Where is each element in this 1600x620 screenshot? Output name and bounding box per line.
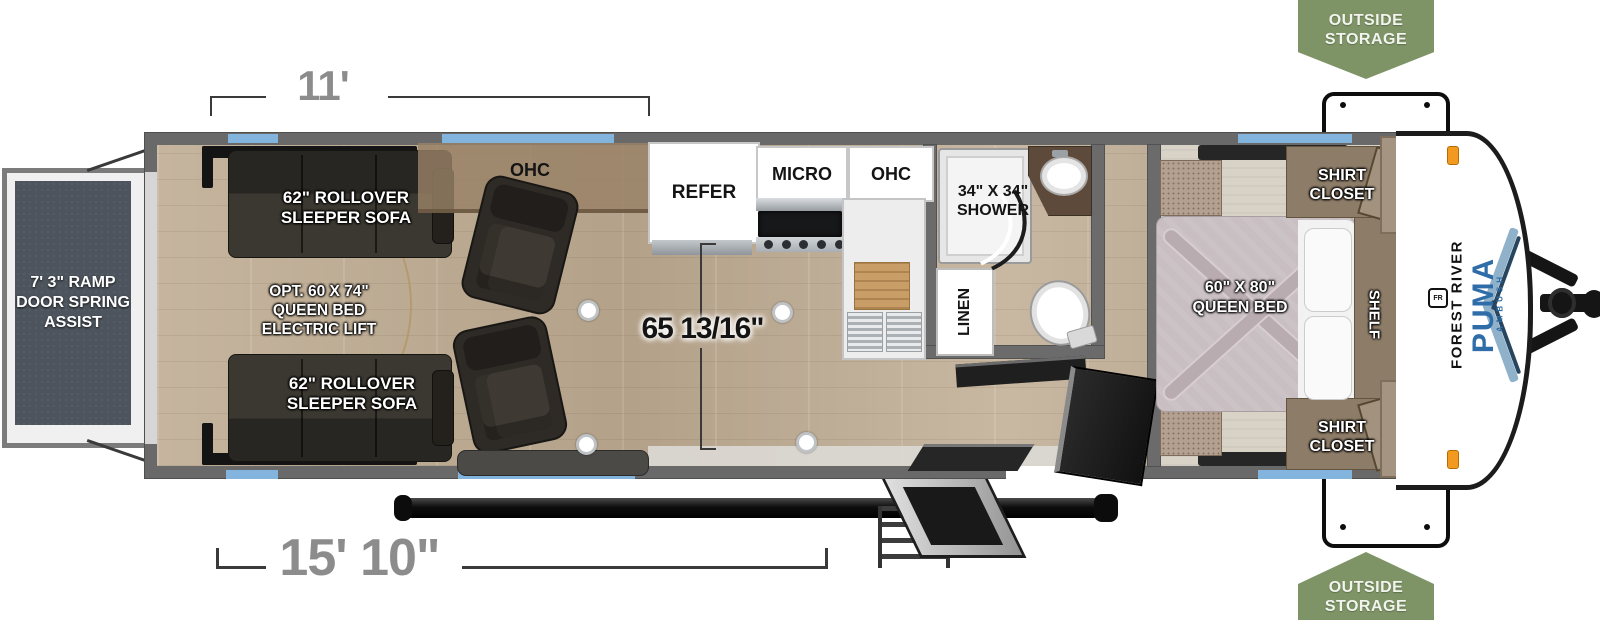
shirt-closet-top-label: SHIRT CLOSET [1282, 166, 1402, 204]
ramp-door-surface: 7' 3" RAMP DOOR SPRING ASSIST [15, 181, 131, 425]
floor-light [796, 432, 817, 453]
floor-light [578, 300, 599, 321]
dimension-interior-width: 65 13/16" [620, 312, 785, 346]
marker-light [1447, 146, 1459, 165]
window [228, 134, 278, 143]
floorplan-canvas: 11' 15' 10" OUTSIDE STORAGE OUTSIDE STOR… [0, 0, 1600, 620]
dimension-tick [216, 548, 219, 569]
window [226, 470, 278, 479]
cutting-board [854, 262, 910, 310]
sink-faucet [1052, 150, 1068, 157]
dimension-garage-width: 11' [268, 62, 378, 110]
queen-bed-label: 60" X 80" QUEEN BED [1152, 278, 1328, 318]
shirt-closet-bottom-label: SHIRT CLOSET [1282, 418, 1402, 456]
sink-cover [886, 312, 922, 352]
cooktop-burners [756, 237, 852, 252]
hitch-coupler [1548, 288, 1576, 318]
brand-trim: AMBUSH [1496, 253, 1505, 353]
window [442, 134, 614, 143]
entry-floor-strip [648, 446, 1108, 466]
microwave-label: MICRO [758, 148, 846, 200]
range-hood [756, 198, 844, 211]
refrigerator-label: REFER [650, 144, 758, 242]
entry-door-open [1054, 366, 1159, 487]
dimension-line [216, 566, 266, 569]
hitch-jack-knob [1582, 290, 1600, 318]
window [1258, 470, 1352, 479]
bed-lift-post [202, 146, 213, 188]
bathroom-wall-right [1092, 145, 1104, 358]
dimension-line [462, 566, 828, 569]
forest-river-emblem: FR [1428, 288, 1448, 308]
floor-light [576, 434, 597, 455]
living-ohc-label: OHC [500, 160, 560, 181]
microwave: MICRO [756, 146, 848, 202]
sofa-bottom-label: 62" ROLLOVER SLEEPER SOFA [256, 374, 448, 414]
bed-lift-post [202, 423, 213, 465]
opt-bed-label: OPT. 60 X 74" QUEEN BED ELECTRIC LIFT [228, 282, 410, 339]
nightstand-top [1160, 160, 1222, 216]
pillow [1304, 316, 1352, 400]
window [1238, 134, 1352, 143]
dimension-tick [648, 96, 650, 116]
outside-storage-badge-bottom: OUTSIDE STORAGE [1298, 552, 1434, 620]
interior-dim-line [700, 348, 702, 450]
stove [758, 211, 842, 237]
awning-end-cap-right [1094, 494, 1118, 522]
interior-dim-line [700, 243, 702, 323]
refrigerator: REFER [648, 142, 760, 244]
sofa-top-label: 62" ROLLOVER SLEEPER SOFA [250, 188, 442, 228]
bathroom-sink [1040, 156, 1088, 196]
linen-label: LINEN [956, 288, 974, 336]
ramp-opening [145, 172, 157, 444]
dimension-line [388, 96, 650, 98]
shower-label: 34" X 34" SHOWER [940, 182, 1046, 220]
interior-dim-tick [700, 448, 716, 450]
linen-closet: LINEN [936, 268, 994, 356]
dimension-tick [825, 548, 828, 569]
marker-light [1447, 450, 1459, 469]
storage-bench [457, 450, 649, 476]
sink-cover [847, 312, 883, 352]
dimension-tick [210, 96, 212, 116]
outside-storage-badge-top: OUTSIDE STORAGE [1298, 0, 1434, 79]
brand-manufacturer: FOREST RIVER [1449, 220, 1466, 390]
interior-dim-tick [700, 243, 716, 245]
entry-step-well [908, 444, 1035, 471]
awning-end-cap-left [394, 495, 412, 521]
dimension-exterior-length: 15' 10" [252, 528, 467, 588]
dimension-line [210, 96, 266, 98]
ramp-door-label: 7' 3" RAMP DOOR SPRING ASSIST [15, 273, 131, 333]
shelf-label: SHELF [1366, 275, 1383, 355]
